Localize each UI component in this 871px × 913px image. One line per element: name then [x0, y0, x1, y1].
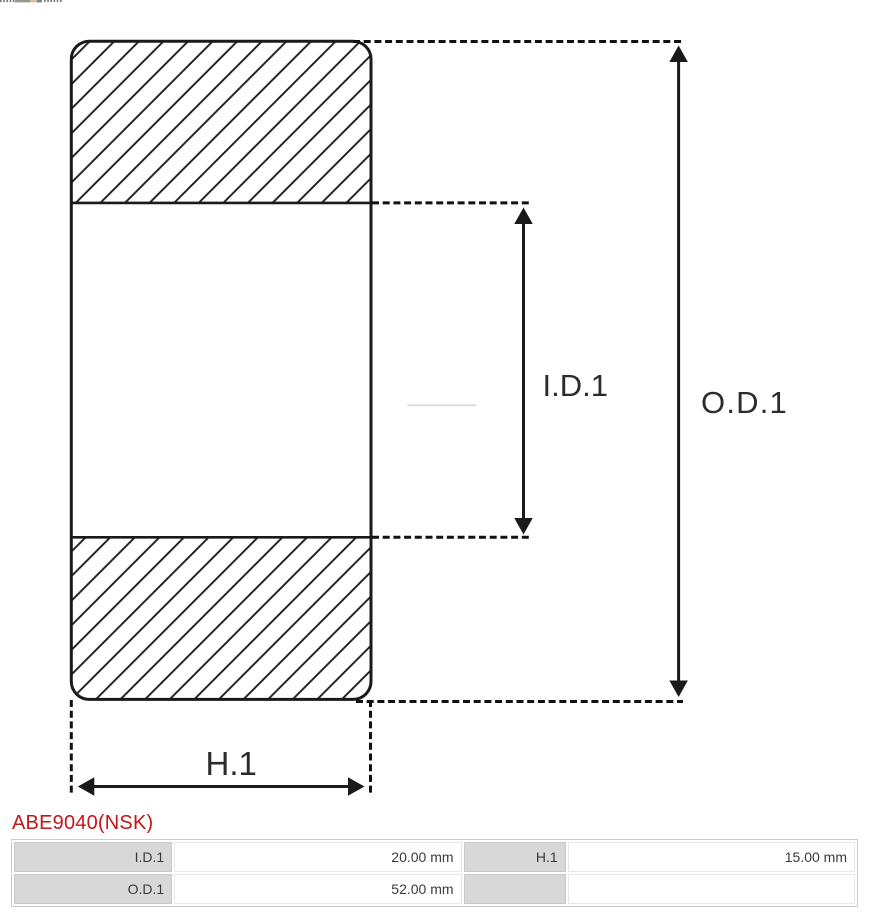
svg-text:H.1: H.1: [206, 745, 257, 782]
svg-text:I.D.1: I.D.1: [543, 368, 608, 403]
svg-text:O.D.1: O.D.1: [701, 385, 788, 420]
